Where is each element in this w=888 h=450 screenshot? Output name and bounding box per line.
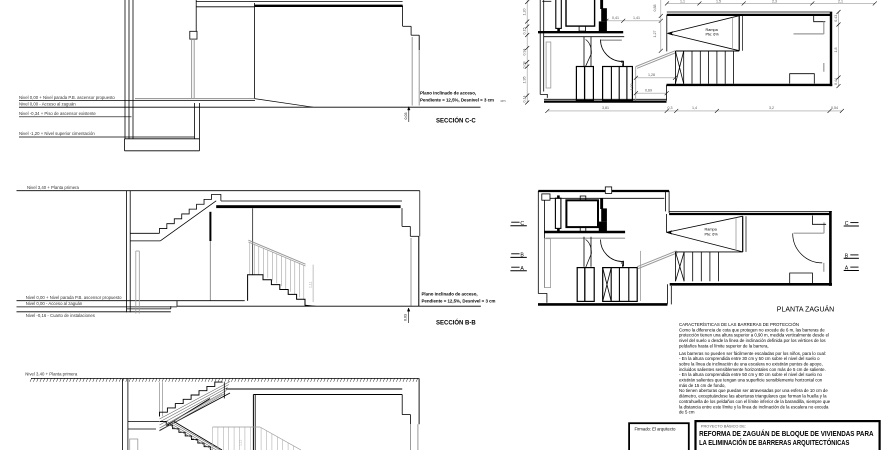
svg-text:Nivel -0,16 - Cuarto de instal: Nivel -0,16 - Cuarto de instalaciones [26, 313, 95, 318]
svg-text:diámetro, exceptuándose las ab: diámetro, exceptuándose las aberturas tr… [679, 394, 827, 399]
svg-text:0,08: 0,08 [523, 62, 527, 69]
svg-text:0,03: 0,03 [404, 113, 408, 120]
svg-text:1,11: 1,11 [309, 282, 313, 288]
svg-text:de 5 cm: de 5 cm [679, 410, 695, 415]
svg-text:Nivel 3,40 + Planta primera: Nivel 3,40 + Planta primera [25, 371, 78, 376]
svg-text:Pte: 6%: Pte: 6% [705, 233, 719, 237]
svg-text:Rampa: Rampa [705, 228, 718, 232]
svg-text:Firmado: El arquitecto: Firmado: El arquitecto [635, 427, 677, 432]
svg-text:1,41: 1,41 [633, 16, 640, 20]
svg-text:Nivel -0,34 + Piso de ascensor: Nivel -0,34 + Piso de ascensor existente [19, 111, 96, 116]
svg-text:nivel del suelo o desde la lín: nivel del suelo o desde la línea de incl… [679, 338, 826, 343]
svg-text:peldaños hasta el límite super: peldaños hasta el límite superior de la … [679, 343, 769, 348]
svg-text:contrahuella de los peldaños c: contrahuella de los peldaños con el lími… [679, 399, 831, 404]
svg-text:Nivel 0,00 + Nivel parada P.B.: Nivel 0,00 + Nivel parada P.B. ascensor … [26, 295, 122, 300]
svg-text:1,5: 1,5 [716, 0, 721, 4]
svg-text:- En la altura comprendida ent: - En la altura comprendida entre 30 cm y… [679, 356, 820, 361]
svg-text:0,41: 0,41 [612, 16, 619, 20]
svg-text:0,44: 0,44 [834, 78, 838, 85]
svg-text:Nivel 0,00 - Acceso al zaguán: Nivel 0,00 - Acceso al zaguán [19, 101, 76, 106]
svg-text:1,00: 1,00 [630, 84, 634, 91]
svg-text:No tienen aberturas que puedan: No tienen aberturas que puedan ser atrav… [679, 388, 828, 393]
svg-text:2,1: 2,1 [838, 0, 843, 4]
svg-text:Las barreras no pueden ser fác: Las barreras no pueden ser fácilmente es… [679, 351, 826, 356]
svg-text:2,3: 2,3 [772, 0, 777, 4]
svg-text:0,3: 0,3 [668, 106, 673, 110]
svg-text:0,14: 0,14 [523, 96, 527, 103]
svg-text:1,28: 1,28 [648, 73, 655, 77]
svg-text:PROYECTO BÁSICO DE:: PROYECTO BÁSICO DE: [701, 423, 746, 428]
svg-text:Nivel -1,20 + Nivel superior c: Nivel -1,20 + Nivel superior cimentación [19, 131, 95, 136]
svg-text:3,2: 3,2 [769, 106, 774, 110]
svg-text:PLANTA ZAGUÁN: PLANTA ZAGUÁN [777, 305, 834, 314]
svg-text:Pendiente = 12,5%, Desnivel =: Pendiente = 12,5%, Desnivel = 3 cm [420, 98, 494, 103]
svg-text:protección tienen una altura s: protección tienen una altura superior a … [679, 333, 829, 338]
svg-text:1,8: 1,8 [834, 48, 838, 53]
svg-text:0,15: 0,15 [523, 28, 527, 35]
svg-text:más de 15 cm de fondo,: más de 15 cm de fondo, [679, 383, 726, 388]
svg-text:REFORMA DE ZAGUÁN DE BLOQUE DE: REFORMA DE ZAGUÁN DE BLOQUE DE VIVIENDAS… [699, 429, 874, 438]
svg-text:0,54: 0,54 [831, 106, 838, 110]
svg-text:cm: cm [501, 99, 506, 103]
svg-text:B: B [621, 59, 624, 64]
svg-text:3,81: 3,81 [602, 106, 609, 110]
svg-text:0,69: 0,69 [645, 89, 652, 93]
svg-text:sobre la línea de inclinación: sobre la línea de inclinación de una esc… [679, 361, 823, 366]
svg-text:SECCIÓN C-C: SECCIÓN C-C [436, 116, 476, 124]
svg-text:0,43: 0,43 [834, 15, 838, 22]
svg-text:0,88: 0,88 [653, 5, 657, 12]
svg-text:- En la altura comprendida ent: - En la altura comprendida entre 50 cm y… [679, 372, 823, 377]
svg-text:Nivel 0,00 - Acceso al zaguán: Nivel 0,00 - Acceso al zaguán [26, 301, 83, 306]
svg-text:Plano inclinado de acceso,: Plano inclinado de acceso, [420, 91, 476, 96]
svg-text:LA ELIMINACIÓN DE BARRERAS ARQ: LA ELIMINACIÓN DE BARRERAS ARQUITECTÓNIC… [699, 438, 849, 447]
svg-text:Pte: 6%: Pte: 6% [706, 33, 720, 37]
svg-text:B: B [621, 260, 624, 265]
svg-text:SECCIÓN B-B: SECCIÓN B-B [436, 318, 476, 326]
svg-text:Nivel 3,40 + Planta primera: Nivel 3,40 + Planta primera [27, 185, 80, 190]
svg-text:1,95: 1,95 [523, 77, 527, 84]
svg-text:Rampa: Rampa [706, 28, 719, 32]
svg-text:Nivel 0,00 + Nivel parada P.B.: Nivel 0,00 + Nivel parada P.B. ascensor … [19, 95, 115, 100]
svg-text:CARACTERÍSTICAS DE LAS BARRERA: CARACTERÍSTICAS DE LAS BARRERAS DE PROTE… [679, 322, 799, 327]
svg-text:existirán salientes que tengan: existirán salientes que tengan una super… [679, 378, 823, 383]
svg-text:1,27: 1,27 [653, 31, 657, 38]
svg-text:Como la diferencia de cota que: Como la diferencia de cota que protegen … [679, 327, 825, 332]
svg-text:la distancia entre este límite: la distancia entre este límite y la líne… [679, 404, 829, 409]
svg-text:1,11: 1,11 [239, 440, 243, 446]
svg-text:Plano inclinado de acceso,: Plano inclinado de acceso, [422, 292, 478, 297]
svg-text:1,1: 1,1 [680, 0, 685, 4]
svg-text:1,20: 1,20 [523, 9, 527, 16]
svg-text:incluidos salientes sensibleme: incluidos salientes sensiblemente horizo… [679, 367, 826, 372]
svg-text:1,4: 1,4 [692, 106, 697, 110]
svg-text:0,94: 0,94 [523, 49, 527, 56]
svg-text:Pendiente = 12,5%, Desnivel =: Pendiente = 12,5%, Desnivel = 3 cm [422, 299, 496, 304]
svg-text:0,03: 0,03 [404, 314, 408, 321]
